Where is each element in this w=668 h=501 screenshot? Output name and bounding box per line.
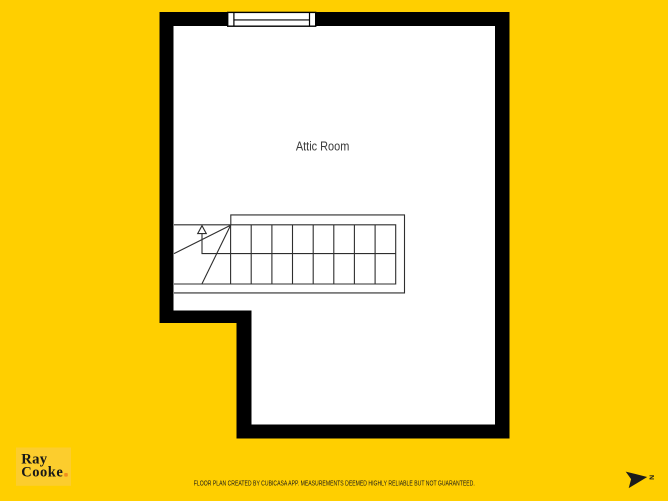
svg-text:Attic Room: Attic Room xyxy=(296,139,350,153)
svg-text:N: N xyxy=(648,475,655,480)
svg-text:FLOOR PLAN CREATED BY CUBICASA: FLOOR PLAN CREATED BY CUBICASA APP. MEAS… xyxy=(194,479,475,488)
svg-text:Cooke: Cooke xyxy=(21,464,63,480)
